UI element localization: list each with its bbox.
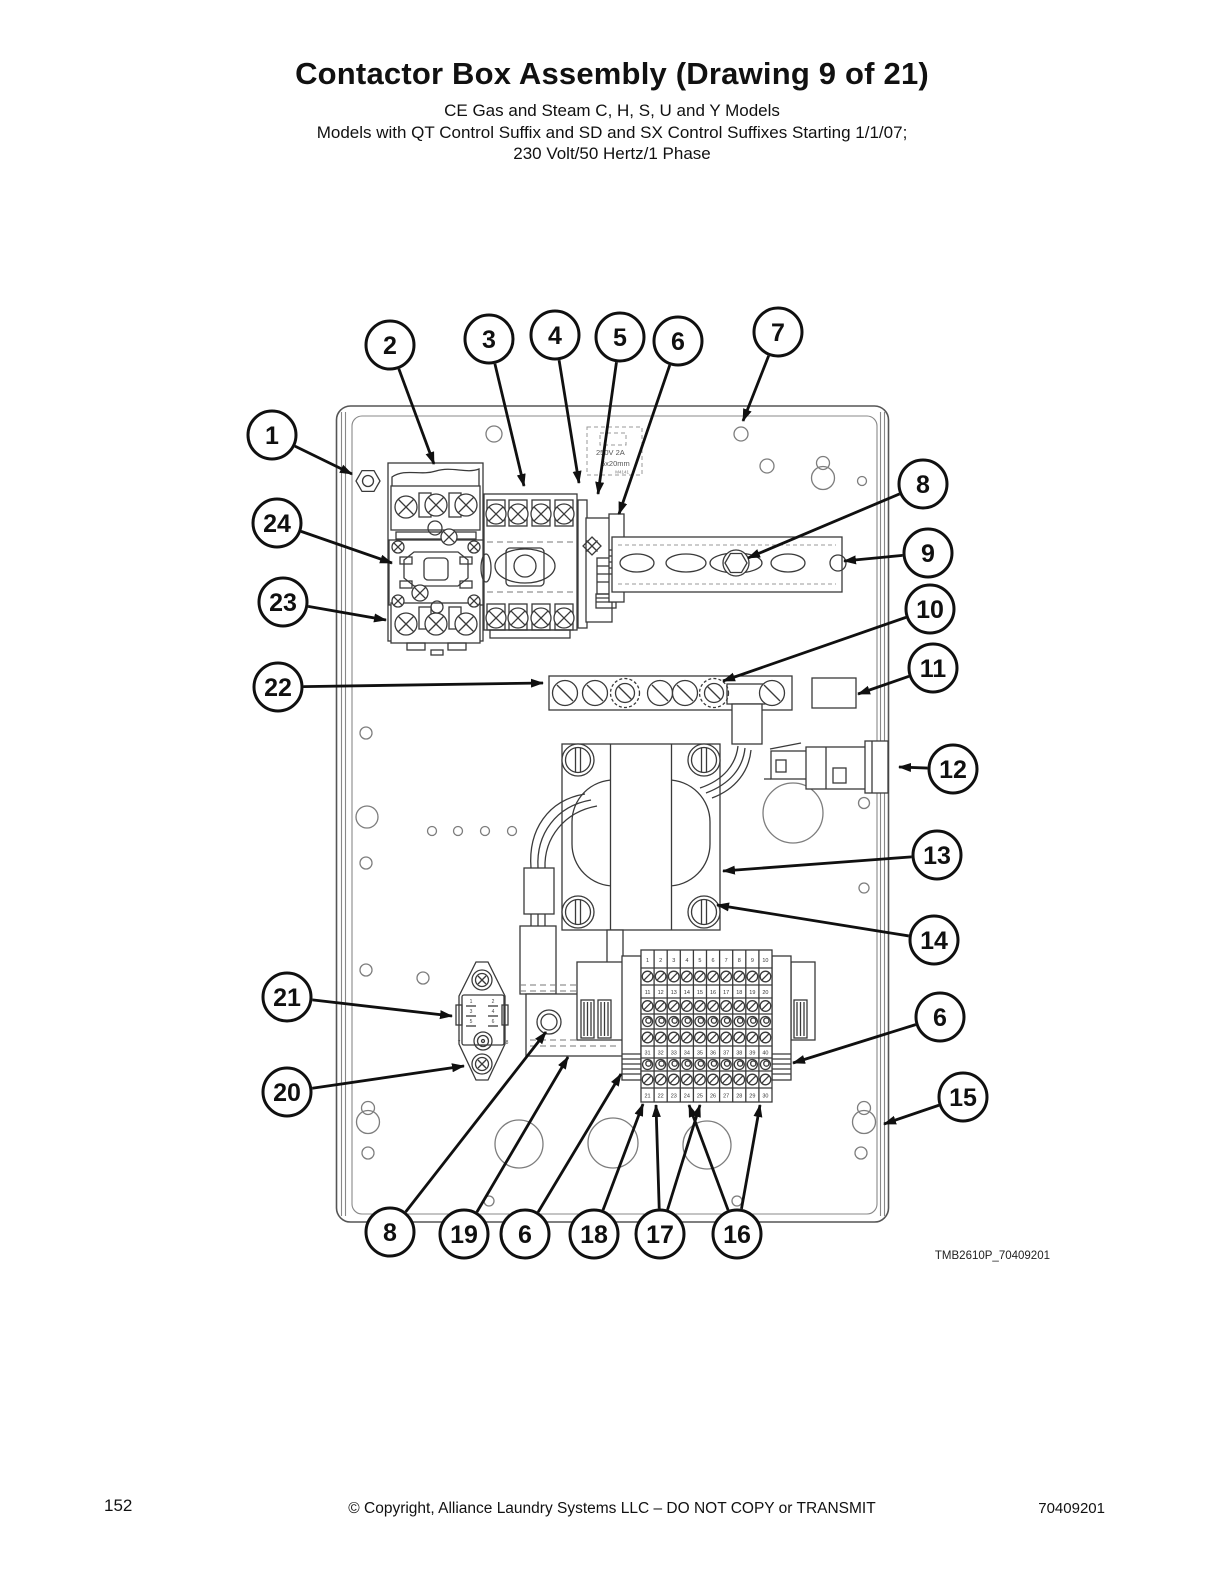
terminal-number: 9: [751, 958, 754, 964]
callout-number: 6: [933, 1004, 947, 1032]
callout-number: 6: [518, 1221, 532, 1249]
callout-number: 6: [671, 328, 685, 356]
terminal-number: 27: [723, 1094, 729, 1100]
terminal-number: 2: [659, 958, 662, 964]
transformer-screw: [562, 896, 594, 928]
callout-number: 23: [269, 589, 297, 617]
contactor-box-diagram: 12345678 250V 2A5x20mmM4141 123456789101…: [0, 0, 1224, 1584]
terminal-number: 16: [710, 990, 716, 996]
callout-9: 9: [844, 529, 952, 577]
terminal-number: 7: [725, 958, 728, 964]
terminal-number: 34: [684, 1051, 690, 1057]
fuse-ref-label: M4141: [615, 470, 629, 475]
keyhole-slot-top: [812, 457, 835, 490]
inlet-screw-top: [472, 970, 492, 990]
leader-line: [899, 767, 928, 768]
leader-line: [312, 1066, 464, 1088]
terminal-number: 14: [684, 990, 690, 996]
terminal-number: 3: [672, 958, 675, 964]
terminal-number: 17: [723, 990, 729, 996]
callout-16: 16: [689, 1105, 761, 1258]
terminal-block-assembly: [577, 950, 815, 1102]
inlet-pin-label: 4: [492, 1009, 495, 1015]
terminal-number: 10: [762, 958, 768, 964]
leader-line: [656, 1105, 659, 1209]
inlet-pin-label: 3: [470, 1009, 473, 1015]
terminal-number: 32: [658, 1051, 664, 1057]
wire-sleeve: [524, 868, 554, 914]
power-inlet: 12345678: [456, 962, 509, 1080]
inlet-pin-label: 8: [506, 1040, 509, 1046]
terminal-number: 37: [723, 1051, 729, 1057]
terminal-number: 30: [762, 1094, 768, 1100]
leader-line: [884, 1105, 939, 1124]
inlet-pin-label: 6: [492, 1019, 495, 1025]
terminal-number: 29: [749, 1094, 755, 1100]
callout-13: 13: [723, 831, 961, 879]
callout-number: 13: [923, 842, 951, 870]
callout-7: 7: [743, 308, 802, 421]
terminal-number: 36: [710, 1051, 716, 1057]
callout-2: 2: [366, 321, 434, 464]
leader-line: [723, 857, 912, 871]
terminal-number: 15: [697, 990, 703, 996]
callout-number: 2: [383, 332, 397, 360]
leader-line: [301, 531, 392, 563]
leader-line: [303, 683, 543, 687]
callout-24: 24: [253, 499, 392, 563]
rail-end-stop-right: [772, 956, 791, 1080]
leader-line: [559, 360, 579, 483]
inlet-pin-label: 7: [458, 1040, 461, 1046]
callout-22: 22: [254, 663, 543, 711]
callout-number: 16: [723, 1221, 751, 1249]
terminal-number: 1: [646, 958, 649, 964]
inlet-pin-label: 1: [470, 999, 473, 1005]
leader-line: [858, 676, 909, 694]
leader-line: [308, 606, 386, 620]
callout-number: 22: [264, 674, 292, 702]
terminal-number: 13: [671, 990, 677, 996]
transformer-screw: [688, 744, 720, 776]
callout-6: 6: [793, 993, 964, 1063]
leader-line: [844, 555, 903, 561]
callout-number: 3: [482, 326, 496, 354]
fuse-voltage-label: 250V 2A: [596, 448, 625, 457]
leader-line: [477, 1057, 568, 1212]
fuse-size-label: 5x20mm: [601, 459, 630, 468]
wire-sleeve-lower: [520, 926, 556, 994]
terminal-number: 38: [736, 1051, 742, 1057]
leader-line: [741, 1105, 760, 1209]
terminal-number: 18: [736, 990, 742, 996]
callout-number: 15: [949, 1084, 977, 1112]
leader-line: [723, 617, 906, 681]
callout-15: 15: [884, 1073, 987, 1124]
callout-number: 5: [613, 324, 627, 352]
terminal-number: 20: [762, 990, 768, 996]
callout-4: 4: [531, 311, 579, 483]
terminal-number: 6: [712, 958, 715, 964]
terminal-number: 4: [685, 958, 688, 964]
leader-line: [495, 364, 524, 486]
callout-number: 8: [383, 1219, 397, 1247]
transformer-screw: [688, 896, 720, 928]
callout-number: 4: [548, 322, 562, 350]
callout-number: 17: [646, 1221, 674, 1249]
leader-line: [619, 365, 670, 514]
leader-line: [743, 356, 769, 421]
inlet-pin-label: 5: [470, 1019, 473, 1025]
callout-number: 14: [920, 927, 948, 955]
callout-number: 19: [450, 1221, 478, 1249]
terminal-number: 33: [671, 1051, 677, 1057]
callout-12: 12: [899, 745, 977, 793]
keyhole-slot-bottom-right: [853, 1102, 876, 1134]
terminal-number: 26: [710, 1094, 716, 1100]
callout-number: 11: [920, 655, 947, 683]
drawing-code: TMB2610P_70409201: [935, 1250, 1050, 1262]
callout-21: 21: [263, 973, 452, 1021]
inlet-pin-label: 2: [492, 999, 495, 1005]
document-number: 70409201: [1038, 1500, 1105, 1517]
callout-3: 3: [465, 315, 524, 486]
keyhole-slot-bottom-left: [357, 1102, 380, 1134]
leader-line: [295, 446, 352, 474]
hex-screw: [356, 471, 380, 492]
terminal-number: 31: [644, 1051, 650, 1057]
transformer-screw: [562, 744, 594, 776]
callout-number: 10: [916, 596, 944, 624]
leader-line: [598, 362, 616, 494]
terminal-number: 39: [749, 1051, 755, 1057]
terminal-number: 8: [738, 958, 741, 964]
terminal-number: 21: [644, 1094, 650, 1100]
leader-line: [312, 1000, 452, 1016]
callout-11: 11: [858, 644, 957, 694]
terminal-number: 40: [762, 1051, 768, 1057]
terminal-number: 28: [736, 1094, 742, 1100]
terminal-number: 23: [671, 1094, 677, 1100]
callout-number: 24: [263, 510, 291, 538]
callout-number: 21: [273, 984, 301, 1012]
callout-number: 1: [265, 422, 279, 450]
spacer-block: [812, 678, 856, 708]
terminal-number: 5: [698, 958, 701, 964]
inlet-screw-bottom: [472, 1054, 492, 1074]
callout-20: 20: [263, 1066, 464, 1116]
callout-number: 12: [939, 756, 967, 784]
terminal-number: 35: [697, 1051, 703, 1057]
callout-number: 9: [921, 540, 935, 568]
callout-23: 23: [259, 578, 386, 626]
manual-page: Contactor Box Assembly (Drawing 9 of 21)…: [0, 0, 1224, 1584]
callout-number: 7: [771, 319, 785, 347]
terminal-number: 24: [684, 1094, 690, 1100]
terminal-number: 11: [645, 990, 651, 996]
callout-number: 20: [273, 1079, 301, 1107]
terminal-number: 25: [697, 1094, 703, 1100]
terminal-number: 19: [749, 990, 755, 996]
terminal-number: 12: [658, 990, 664, 996]
rail-end-stop-left: [622, 956, 641, 1080]
callout-number: 8: [916, 471, 930, 499]
terminal-number: 22: [658, 1094, 664, 1100]
callout-number: 18: [580, 1221, 608, 1249]
din-rail: [612, 537, 846, 592]
